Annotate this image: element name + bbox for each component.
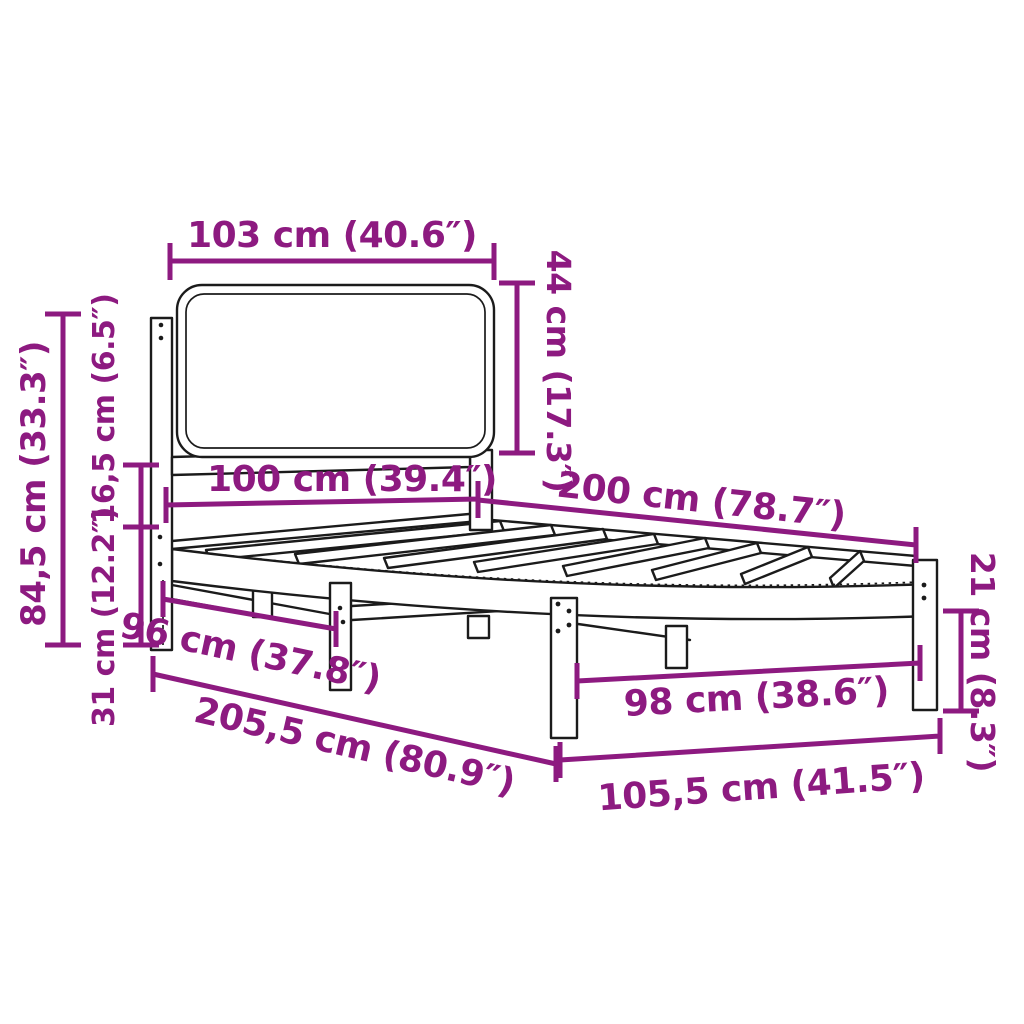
label-clearance: 31 cm (12.2″)	[87, 507, 122, 727]
dimline-headboard-height	[499, 283, 535, 453]
far-leg-foot-2	[468, 616, 489, 638]
headboard-cushion	[177, 285, 494, 457]
label-headboard-width: 103 cm (40.6″)	[187, 215, 477, 256]
label-bed-length: 200 cm (78.7″)	[555, 465, 848, 537]
label-total-height: 84,5 cm (33.3″)	[14, 341, 54, 627]
leg-near-middle-2	[551, 598, 577, 738]
label-bed-width: 100 cm (39.4″)	[207, 459, 497, 500]
label-outer-width: 105,5 cm (41.5″)	[596, 756, 926, 820]
leg-foot	[913, 560, 937, 710]
label-leg-height: 21 cm (8.3″)	[963, 552, 1002, 772]
dimension-diagram: 103 cm (40.6″) 44 cm (17.3″) 100 cm (39.…	[0, 0, 1024, 1024]
label-rail-section: 16,5 cm (6.5″)	[87, 294, 122, 525]
bed-frame-diagram-canvas: 103 cm (40.6″) 44 cm (17.3″) 100 cm (39.…	[0, 0, 1024, 1024]
label-headboard-height: 44 cm (17.3″)	[539, 250, 578, 493]
far-middle-leg	[666, 626, 687, 668]
